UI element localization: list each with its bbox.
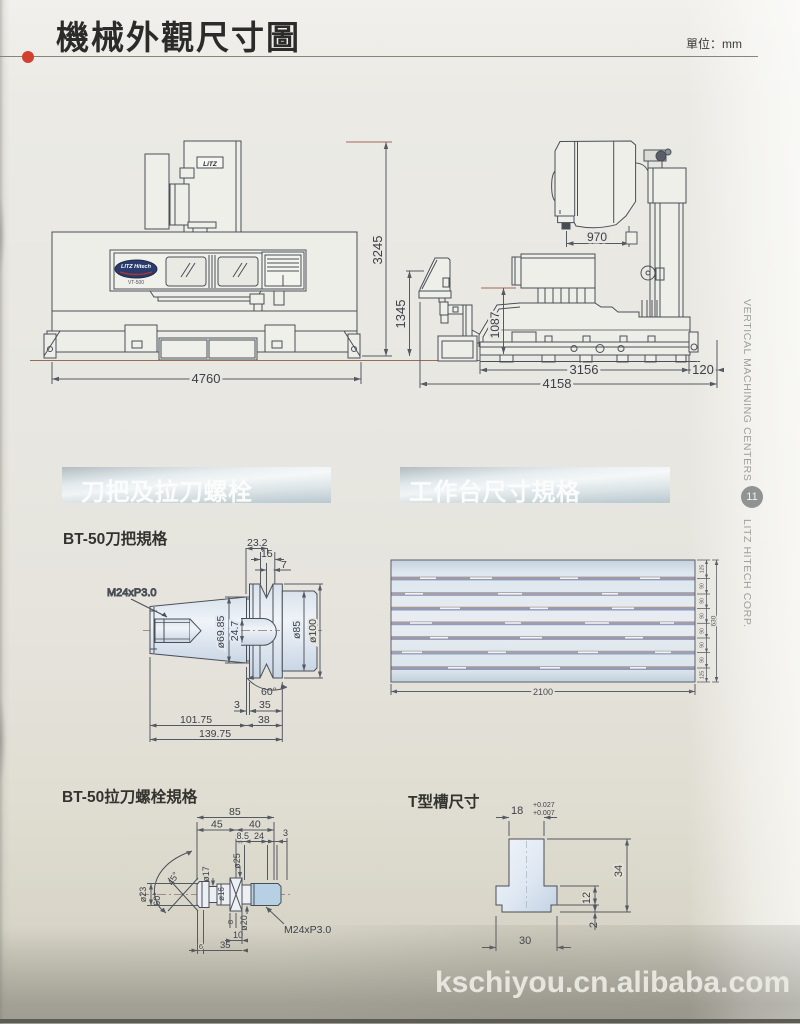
svg-text:24.7: 24.7 [229, 621, 241, 642]
svg-text:7: 7 [281, 559, 287, 571]
svg-text:34: 34 [613, 865, 625, 877]
svg-text:3: 3 [283, 828, 288, 838]
svg-text:60°: 60° [261, 686, 277, 698]
svg-text:45: 45 [211, 819, 223, 831]
svg-text:24: 24 [254, 831, 264, 841]
svg-text:1345: 1345 [393, 300, 408, 329]
svg-text:45°: 45° [166, 870, 181, 887]
svg-text:LiTZ: LiTZ [203, 161, 218, 168]
svg-text:M24xP3.0: M24xP3.0 [107, 587, 157, 599]
svg-text:85: 85 [229, 806, 241, 818]
svg-text:ø85: ø85 [291, 621, 303, 639]
svg-text:4158: 4158 [543, 376, 572, 391]
svg-text:+0.007: +0.007 [533, 810, 555, 817]
svg-text:ø100: ø100 [307, 619, 319, 643]
svg-text:ø23: ø23 [138, 887, 148, 903]
svg-text:3: 3 [234, 699, 240, 711]
svg-text:12: 12 [581, 892, 593, 904]
svg-text:125: 125 [700, 671, 706, 680]
svg-text:90: 90 [700, 598, 706, 604]
svg-text:90: 90 [700, 628, 706, 634]
svg-text:2100: 2100 [533, 687, 553, 697]
svg-text:8: 8 [226, 920, 235, 924]
svg-text:120: 120 [692, 362, 714, 377]
svg-text:35: 35 [259, 699, 271, 711]
svg-text:ø69.85: ø69.85 [215, 616, 227, 649]
svg-text:LITZ Hitech: LITZ Hitech [121, 264, 152, 270]
svg-text:90: 90 [700, 657, 706, 663]
svg-text:40: 40 [249, 819, 261, 831]
svg-text:4760: 4760 [192, 371, 221, 386]
svg-text:VT-500: VT-500 [128, 280, 144, 286]
svg-text:ø16: ø16 [217, 887, 226, 901]
svg-text:+0.027: +0.027 [533, 802, 555, 809]
svg-text:630: 630 [711, 615, 718, 626]
svg-text:38: 38 [258, 714, 270, 726]
svg-text:18: 18 [511, 805, 523, 817]
svg-text:90: 90 [700, 583, 706, 589]
svg-text:3156: 3156 [570, 362, 599, 377]
svg-text:15: 15 [261, 548, 273, 560]
svg-text:1087: 1087 [488, 311, 502, 338]
svg-text:ø17: ø17 [201, 866, 211, 882]
svg-text:8.5: 8.5 [237, 831, 250, 841]
svg-text:101.75: 101.75 [180, 714, 212, 726]
svg-text:90: 90 [700, 613, 706, 619]
svg-text:139.75: 139.75 [199, 728, 231, 740]
svg-text:90: 90 [700, 642, 706, 648]
svg-text:60°: 60° [152, 892, 162, 906]
svg-text:3245: 3245 [370, 236, 385, 265]
svg-text:970: 970 [587, 230, 607, 244]
svg-text:125: 125 [700, 565, 706, 574]
